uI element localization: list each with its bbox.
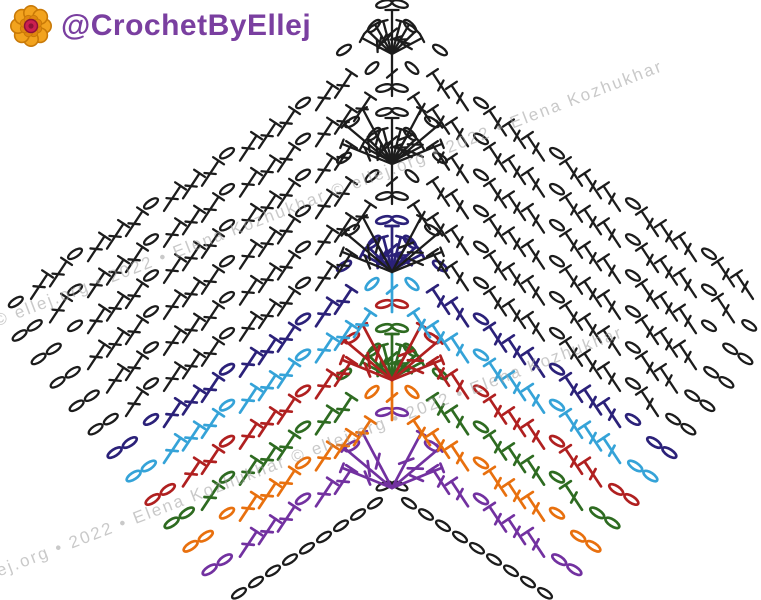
chart-row-foundation-chain (231, 480, 554, 600)
logo: @CrochetByEllej (8, 3, 311, 49)
chart-row-row-11 (11, 50, 758, 343)
crochet-chart-page: @CrochetByEllej © ellej.org • 2022 • Ele… (0, 0, 761, 600)
logo-handle: @CrochetByEllej (61, 9, 311, 43)
crochet-chevron-chart (0, 0, 761, 600)
chart-row-row-3 (163, 323, 621, 530)
chart-row-row-1 (201, 407, 583, 577)
flower-icon (8, 3, 54, 49)
